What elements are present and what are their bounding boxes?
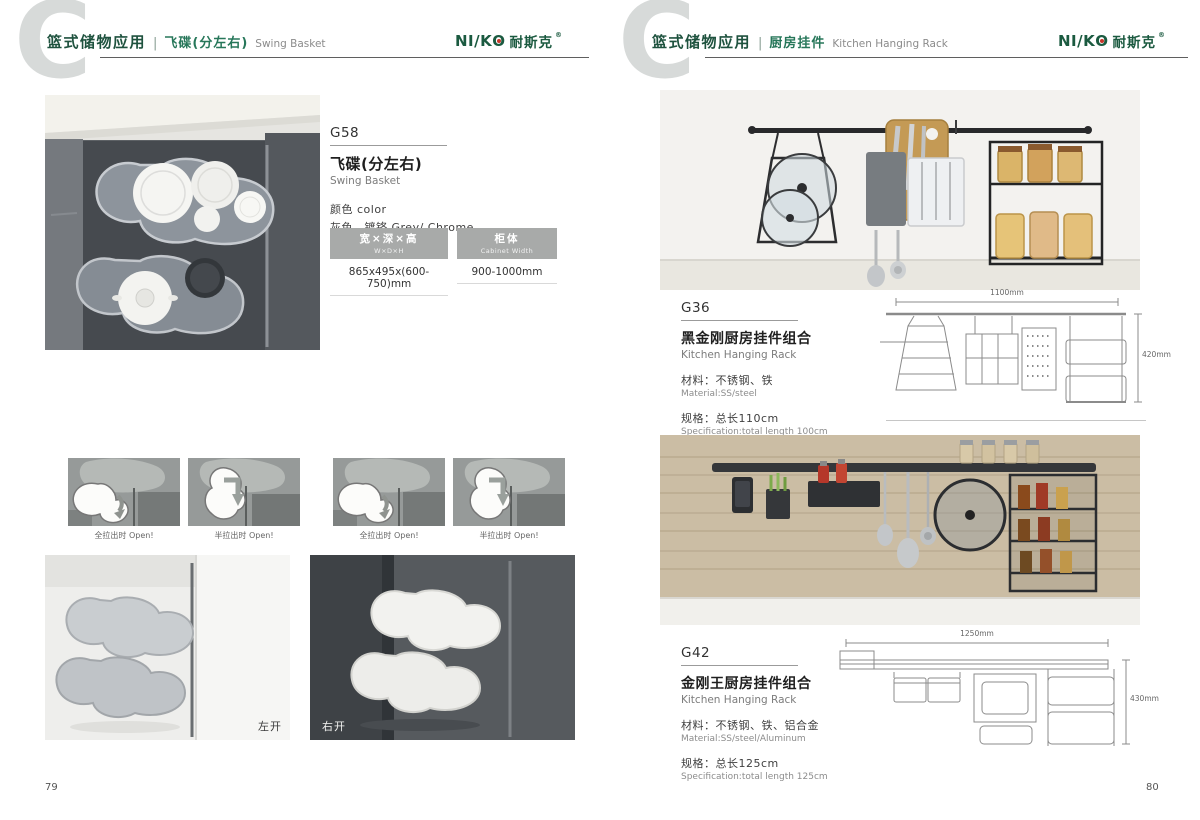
product-name-en: Kitchen Hanging Rack — [681, 349, 881, 361]
product-code: G58 — [330, 125, 555, 141]
page-number-left: 79 — [45, 782, 58, 793]
open-direction-label-left: 左开 — [258, 718, 282, 734]
product-code-rule — [681, 665, 798, 666]
product-photo-hanging-rack-black — [660, 90, 1140, 290]
photo-open-left: 左开 — [45, 555, 290, 740]
logo-text: NI/KO — [1058, 32, 1109, 50]
header-subtitle-cn: 厨房挂件 — [769, 32, 825, 51]
spec-cn: 规格：总长125cm — [681, 755, 891, 771]
dim-width-label: 1250mm — [832, 629, 1122, 638]
product-code-rule — [330, 145, 447, 146]
corner-cabinet-illustration — [45, 95, 320, 350]
material-en: Material:SS/steel — [681, 389, 881, 399]
page-header: 篮式储物应用 | 飞碟(分左右) Swing Basket — [47, 31, 326, 52]
header-subtitle-en: Kitchen Hanging Rack — [832, 38, 947, 50]
spec-en: Specification:total length 125cm — [681, 772, 891, 782]
logo-text: NI/KO — [455, 32, 506, 50]
product-name-cn: 黑金刚厨房挂件组合 — [681, 328, 881, 348]
header-category: 篮式储物应用 — [652, 31, 751, 52]
spec-col-cabinet: 柜体 Cabinet Width 900-1000mm — [457, 228, 557, 296]
logo-cn: 耐斯克 — [510, 31, 554, 51]
dim-height-label: 420mm — [1142, 350, 1171, 359]
header-category: 篮式储物应用 — [47, 31, 146, 52]
open-diagram-4 — [453, 458, 565, 526]
spec-cn: 规格：总长110cm — [681, 410, 881, 426]
open-diagram-1 — [68, 458, 180, 526]
logo-cn: 耐斯克 — [1113, 31, 1157, 51]
logo-o: O — [1095, 32, 1108, 50]
open-diagram-2 — [188, 458, 300, 526]
header-separator: | — [153, 36, 157, 51]
logo-o: O — [492, 32, 505, 50]
spec-value-cabinet: 900-1000mm — [457, 259, 557, 284]
photo-open-right: 右开 — [310, 555, 575, 740]
header-subtitle-cn: 飞碟(分左右) — [164, 32, 248, 51]
dimension-drawing-g36: 1100mm 420mm — [880, 290, 1160, 408]
open-direction-label-right: 右开 — [322, 718, 346, 734]
open-diagram-3 — [333, 458, 445, 526]
product-block-g58: G58 飞碟(分左右) Swing Basket 颜色 color 灰色、镀铬 … — [330, 125, 555, 235]
header-rule — [100, 57, 589, 58]
header-separator: | — [758, 36, 762, 51]
dim-height-label: 430mm — [1130, 694, 1159, 703]
color-label: 颜色 color — [330, 201, 555, 217]
nisko-logo: NI/KO 耐斯克 ® — [1058, 31, 1165, 51]
product-name-en: Swing Basket — [330, 175, 555, 187]
spec-col-size: 宽×深×高 W×D×H 865x495x(600-750)mm — [330, 228, 448, 296]
logo-registered: ® — [555, 31, 562, 39]
logo-registered: ® — [1158, 31, 1165, 39]
spec-header-size: 宽×深×高 W×D×H — [330, 228, 448, 259]
section-divider — [886, 420, 1146, 421]
spec-table: 宽×深×高 W×D×H 865x495x(600-750)mm 柜体 Cabin… — [330, 228, 557, 296]
nisko-logo: NI/KO 耐斯克 ® — [455, 31, 562, 51]
dim-width-label: 1100mm — [880, 288, 1134, 297]
product-photo-corner-cabinet — [45, 95, 320, 350]
spec-header-cabinet: 柜体 Cabinet Width — [457, 228, 557, 259]
diagram-caption-3: 全拉出时 Open! — [333, 530, 445, 541]
spec-value-size: 865x495x(600-750)mm — [330, 259, 448, 296]
page-number-right: 80 — [1146, 782, 1159, 793]
product-block-g36: G36 黑金刚厨房挂件组合 Kitchen Hanging Rack 材料：不锈… — [681, 300, 881, 437]
header-subtitle-en: Swing Basket — [255, 38, 325, 50]
diagram-caption-2: 半拉出时 Open! — [188, 530, 300, 541]
product-code: G36 — [681, 300, 881, 316]
catalog-spread: C 篮式储物应用 | 飞碟(分左右) Swing Basket NI/KO 耐斯… — [0, 0, 1200, 820]
diagram-caption-1: 全拉出时 Open! — [68, 530, 180, 541]
dimension-drawing-g42: 1250mm 430mm — [832, 632, 1142, 752]
diagram-caption-4: 半拉出时 Open! — [453, 530, 565, 541]
product-photo-hanging-rack-aluminum — [660, 435, 1140, 625]
material-cn: 材料：不锈钢、铁 — [681, 372, 881, 388]
product-name-cn: 飞碟(分左右) — [330, 153, 555, 174]
page-header: 篮式储物应用 | 厨房挂件 Kitchen Hanging Rack — [652, 31, 948, 52]
product-code-rule — [681, 320, 798, 321]
header-rule — [705, 57, 1188, 58]
